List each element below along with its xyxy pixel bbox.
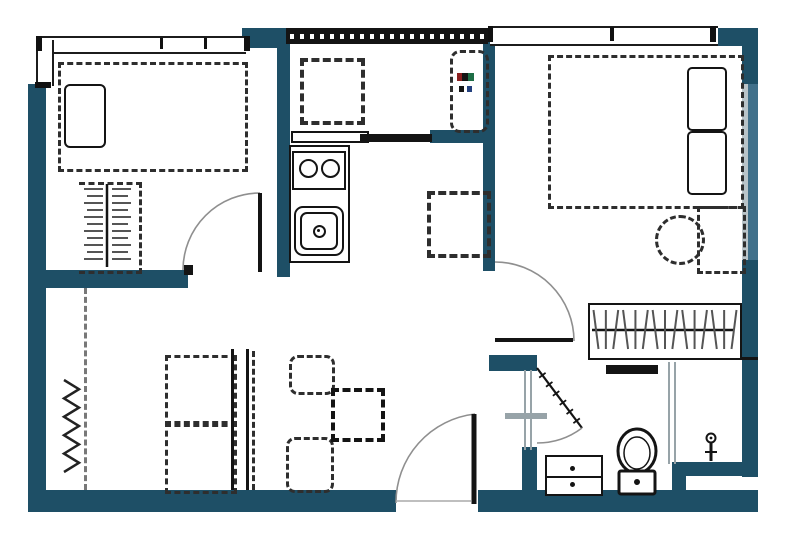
wardrobe-hanger-strokes xyxy=(594,310,737,349)
shower-mixer-dot xyxy=(710,437,713,440)
plan-linework-layer xyxy=(0,0,786,535)
coat-rack-symbol xyxy=(64,380,79,472)
door-arc-bedroom2 xyxy=(495,262,574,341)
door-arc-entry xyxy=(396,414,475,503)
door-jamb-block xyxy=(184,265,193,275)
door-arc-bedroom1 xyxy=(183,193,260,270)
floor-plan xyxy=(0,0,786,535)
toilet-flush-button xyxy=(634,479,640,485)
door-leaf-bathroom xyxy=(537,368,582,428)
door-arc-bathroom xyxy=(537,428,582,443)
